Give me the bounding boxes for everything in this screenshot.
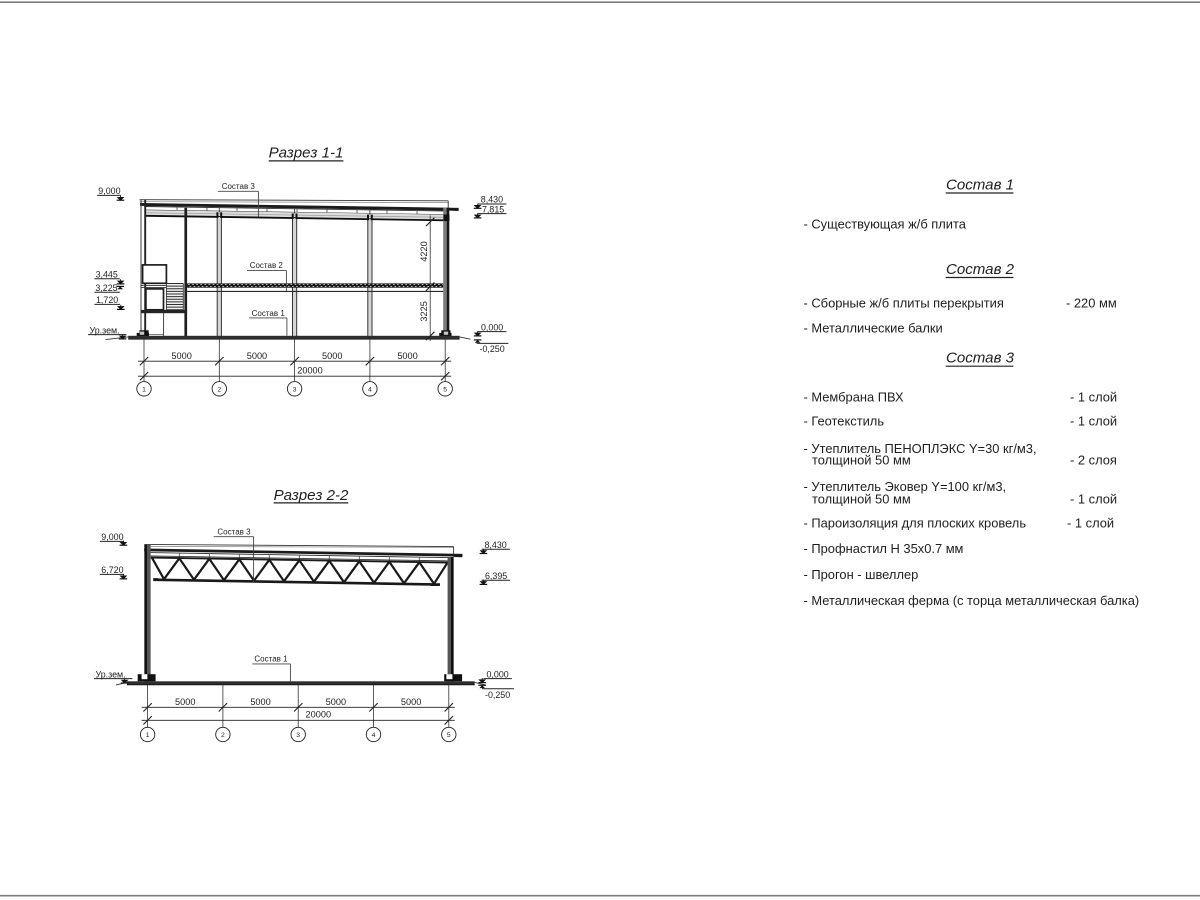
svg-text:Состав 3: Состав 3 <box>222 182 256 191</box>
svg-text:- Существующая ж/б плита: - Существующая ж/б плита <box>804 217 967 232</box>
svg-text:Состав 2: Состав 2 <box>250 261 284 270</box>
svg-text:3: 3 <box>293 386 297 393</box>
svg-text:20000: 20000 <box>306 710 332 720</box>
svg-text:5000: 5000 <box>401 697 421 707</box>
svg-text:5000: 5000 <box>322 351 342 361</box>
svg-text:5000: 5000 <box>250 697 270 707</box>
svg-text:7,815: 7,815 <box>482 204 504 214</box>
svg-text:- Пароизоляция для плоских кро: - Пароизоляция для плоских кровель <box>804 516 1027 531</box>
svg-text:9,000: 9,000 <box>101 532 123 542</box>
svg-text:Состав 2: Состав 2 <box>946 261 1015 278</box>
svg-text:0,000: 0,000 <box>481 322 503 332</box>
svg-text:8,430: 8,430 <box>481 195 503 205</box>
svg-text:Ур.зем.: Ур.зем. <box>90 325 120 335</box>
svg-text:4220: 4220 <box>419 241 429 261</box>
svg-text:- Металлические балки: - Металлические балки <box>804 321 943 336</box>
svg-text:20000: 20000 <box>297 366 323 376</box>
svg-text:1: 1 <box>146 732 150 739</box>
svg-text:0,000: 0,000 <box>487 669 509 679</box>
svg-text:4: 4 <box>368 386 372 393</box>
svg-text:3,225: 3,225 <box>95 283 117 293</box>
svg-text:- 1 слой: - 1 слой <box>1067 516 1114 531</box>
svg-text:- 2 слоя: - 2 слоя <box>1070 452 1117 467</box>
svg-text:Состав 3: Состав 3 <box>217 527 251 536</box>
svg-text:Ур.зем.: Ур.зем. <box>96 669 126 679</box>
svg-text:- 1 слой: - 1 слой <box>1070 390 1117 405</box>
svg-text:Состав 1: Состав 1 <box>946 176 1014 193</box>
svg-text:- Сборные ж/б плиты перекрытия: - Сборные ж/б плиты перекрытия <box>804 296 1004 311</box>
svg-text:5: 5 <box>447 732 451 739</box>
svg-text:5000: 5000 <box>175 697 195 707</box>
svg-text:2: 2 <box>217 386 221 393</box>
svg-text:- Мембрана ПВХ: - Мембрана ПВХ <box>804 390 905 405</box>
svg-text:1,720: 1,720 <box>96 295 118 305</box>
svg-text:3,445: 3,445 <box>96 270 118 280</box>
svg-text:Состав 1: Состав 1 <box>254 655 288 664</box>
svg-text:Разрез 2-2: Разрез 2-2 <box>274 487 349 504</box>
svg-text:9,000: 9,000 <box>98 186 120 196</box>
svg-text:- 1 слой: - 1 слой <box>1070 414 1117 429</box>
svg-text:-0,250: -0,250 <box>480 344 505 354</box>
svg-text:5000: 5000 <box>326 697 346 707</box>
svg-text:Разрез 1-1: Разрез 1-1 <box>269 145 344 162</box>
svg-text:- Металлическая ферма (с торца: - Металлическая ферма (с торца металличе… <box>804 593 1140 608</box>
svg-text:4: 4 <box>372 732 376 739</box>
svg-text:5: 5 <box>443 386 447 393</box>
svg-text:5000: 5000 <box>247 351 267 361</box>
svg-text:Состав 3: Состав 3 <box>946 350 1015 367</box>
svg-text:- 220 мм: - 220 мм <box>1066 296 1117 311</box>
svg-text:5000: 5000 <box>397 351 417 361</box>
svg-text:-0,250: -0,250 <box>485 690 510 700</box>
svg-text:толщиной 50 мм: толщиной 50 мм <box>812 452 911 467</box>
svg-text:- Геотекстиль: - Геотекстиль <box>804 414 885 429</box>
svg-text:6,720: 6,720 <box>101 565 123 575</box>
svg-text:Состав 1: Состав 1 <box>252 309 286 318</box>
svg-text:8,430: 8,430 <box>485 540 507 550</box>
svg-text:3225: 3225 <box>419 301 429 321</box>
svg-text:1: 1 <box>142 386 146 393</box>
svg-text:- Профнастил Н 35х0.7 мм: - Профнастил Н 35х0.7 мм <box>804 541 964 556</box>
svg-text:3: 3 <box>296 732 300 739</box>
svg-text:- 1 слой: - 1 слой <box>1070 492 1117 507</box>
svg-text:6,395: 6,395 <box>485 571 507 581</box>
svg-text:толщиной 50 мм: толщиной 50 мм <box>812 492 911 507</box>
svg-text:- Прогон - швеллер: - Прогон - швеллер <box>804 567 919 582</box>
svg-text:5000: 5000 <box>171 351 191 361</box>
svg-text:2: 2 <box>221 732 225 739</box>
